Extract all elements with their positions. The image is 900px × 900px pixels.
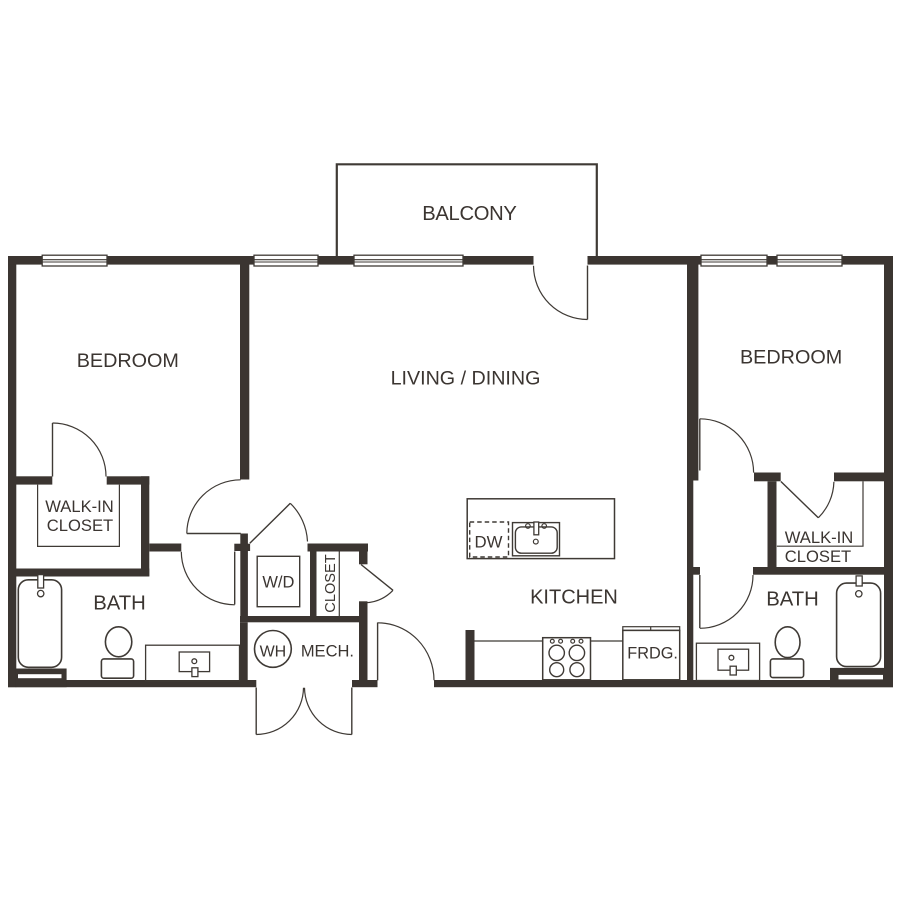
svg-text:KITCHEN: KITCHEN (530, 587, 618, 609)
svg-text:WALK-IN: WALK-IN (45, 497, 114, 516)
svg-text:CLOSET: CLOSET (47, 516, 113, 535)
svg-text:WALK-IN: WALK-IN (785, 528, 854, 547)
svg-text:FRDG.: FRDG. (627, 644, 678, 662)
svg-text:BALCONY: BALCONY (422, 203, 517, 225)
svg-text:BEDROOM: BEDROOM (740, 347, 842, 369)
svg-text:MECH.: MECH. (301, 643, 354, 661)
svg-text:BATH: BATH (766, 589, 819, 611)
svg-text:LIVING / DINING: LIVING / DINING (391, 367, 541, 389)
svg-text:DW: DW (475, 532, 503, 551)
svg-text:CLOSET: CLOSET (323, 554, 339, 612)
svg-text:CLOSET: CLOSET (785, 547, 851, 566)
svg-text:WH: WH (260, 643, 287, 660)
svg-text:BATH: BATH (93, 592, 146, 614)
svg-text:W/D: W/D (262, 573, 294, 591)
svg-text:BEDROOM: BEDROOM (77, 350, 179, 372)
